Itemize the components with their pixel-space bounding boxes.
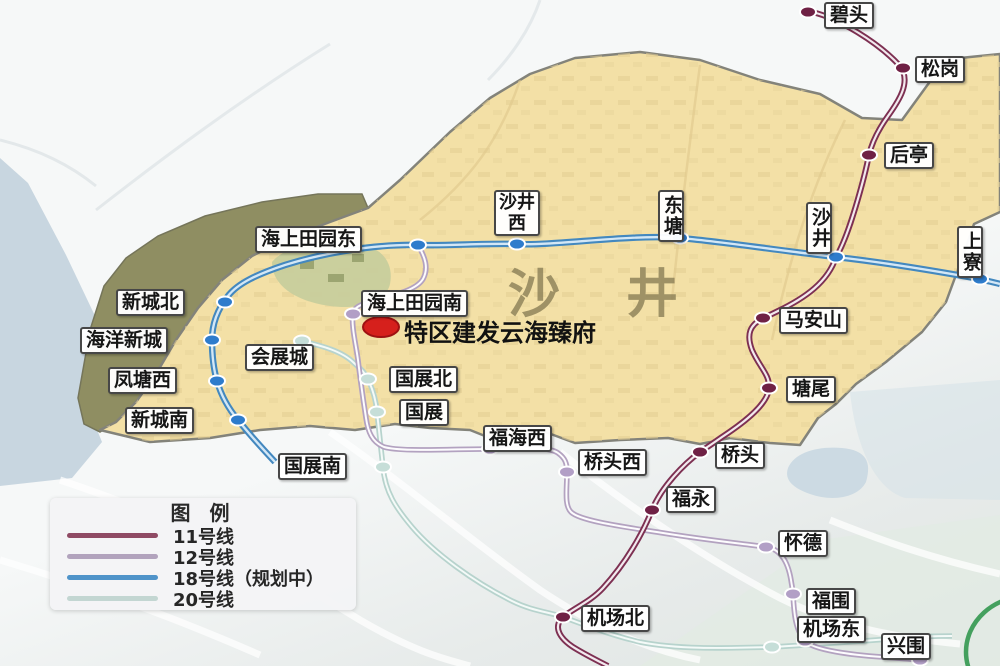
property-marker-label: 特区建发云海臻府 xyxy=(404,313,596,348)
station-label-塘尾: 塘尾 xyxy=(786,376,836,403)
station-label-新城北: 新城北 xyxy=(116,289,185,316)
lake-area xyxy=(787,448,868,498)
station-dot-怀德 xyxy=(758,542,774,553)
station-label-国展: 国展 xyxy=(399,399,449,426)
station-dot-国展南 xyxy=(375,462,391,473)
station-dot-凤塘西 xyxy=(209,376,225,387)
property-marker xyxy=(363,317,399,337)
station-label-机场北: 机场北 xyxy=(581,605,650,632)
station-label-国展北: 国展北 xyxy=(389,366,458,393)
station-dot-福永 xyxy=(644,505,660,516)
station-label-怀德: 怀德 xyxy=(778,530,828,557)
station-label-桥头: 桥头 xyxy=(715,442,765,469)
legend-line-swatch xyxy=(67,554,158,559)
legend-row-1: 12号线 xyxy=(50,547,356,566)
water-area-bay xyxy=(850,380,1000,500)
station-label-福永: 福永 xyxy=(666,486,716,513)
station-label-福海西: 福海西 xyxy=(483,425,552,452)
station-dot-海洋新城 xyxy=(204,335,220,346)
station-label-松岗: 松岗 xyxy=(915,56,965,83)
station-dot-海上田园南 xyxy=(345,309,361,320)
station-label-东塘: 东塘 xyxy=(658,190,684,242)
station-dot-国展北 xyxy=(360,374,376,385)
station-dot-福围 xyxy=(785,589,801,600)
station-dot-松岗 xyxy=(895,63,911,74)
legend-row-2: 18号线（规划中） xyxy=(50,568,356,587)
station-label-会展城: 会展城 xyxy=(245,344,314,371)
station-dot-海上田园东 xyxy=(410,240,426,251)
property-marker-dot xyxy=(363,317,399,337)
station-label-凤塘西: 凤塘西 xyxy=(108,367,177,394)
legend-line-label: 20号线 xyxy=(173,586,234,612)
station-label-福围: 福围 xyxy=(806,588,856,615)
station-dot-塘尾 xyxy=(761,383,777,394)
station-dot-后亭 xyxy=(861,150,877,161)
station-label-沙井: 沙井 xyxy=(806,202,832,254)
station-label-后亭: 后亭 xyxy=(884,142,934,169)
station-label-海上田园东: 海上田园东 xyxy=(255,226,362,253)
legend-line-swatch xyxy=(67,575,158,580)
station-label-桥头西: 桥头西 xyxy=(578,449,647,476)
station-label-上寮: 上寮 xyxy=(957,226,983,278)
station-dot-新城北 xyxy=(217,297,233,308)
station-label-海洋新城: 海洋新城 xyxy=(80,327,168,354)
metro-map: 碧头松岗后亭沙井上寮东塘沙井 西海上田园东新城北海洋新城凤塘西新城南马安山塘尾桥… xyxy=(0,0,1000,666)
station-label-机场东: 机场东 xyxy=(797,616,866,643)
station-label-新城南: 新城南 xyxy=(125,407,194,434)
station-dot-unnamed xyxy=(764,642,780,653)
station-label-国展南: 国展南 xyxy=(278,453,347,480)
legend-box: 图 例 11号线12号线18号线（规划中）20号线 xyxy=(50,498,356,610)
station-dot-机场北 xyxy=(555,612,571,623)
station-dot-国展 xyxy=(369,407,385,418)
station-dot-马安山 xyxy=(755,313,771,324)
station-dot-桥头西 xyxy=(559,467,575,478)
legend-line-swatch xyxy=(67,596,158,601)
station-label-沙井西: 沙井 西 xyxy=(494,190,540,236)
legend-title: 图 例 xyxy=(50,502,356,524)
station-label-马安山: 马安山 xyxy=(779,307,848,334)
water-area-west xyxy=(0,158,102,486)
legend-line-swatch xyxy=(67,533,158,538)
legend-rows: 11号线12号线18号线（规划中）20号线 xyxy=(50,526,356,608)
station-dot-桥头 xyxy=(692,447,708,458)
station-label-兴围: 兴围 xyxy=(881,633,931,660)
station-label-碧头: 碧头 xyxy=(824,2,874,29)
legend-row-0: 11号线 xyxy=(50,526,356,545)
station-dot-沙井西 xyxy=(509,239,525,250)
station-dot-新城南 xyxy=(230,415,246,426)
legend-row-3: 20号线 xyxy=(50,589,356,608)
station-dot-碧头 xyxy=(800,7,816,18)
